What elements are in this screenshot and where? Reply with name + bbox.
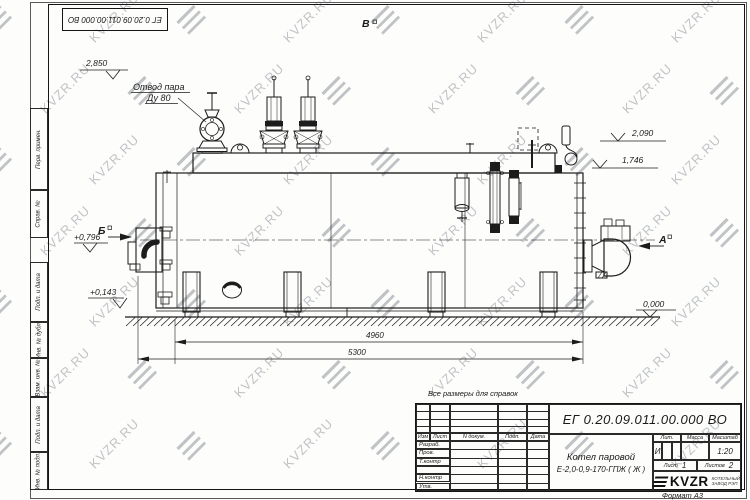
title-block: Изм Лист N докум. Подп. Дата Разраб. Про… bbox=[415, 403, 742, 492]
col-header-izm: Изм bbox=[416, 433, 430, 441]
doc-number: ЕГ 0.20.09.011.00.000 ВО bbox=[549, 404, 741, 434]
row-tkontr: Т.контр bbox=[416, 458, 450, 466]
mass-header: Масса bbox=[681, 434, 709, 442]
col-header-data: Дата bbox=[527, 433, 549, 441]
lit-cell-2 bbox=[662, 442, 671, 460]
kvzr-stripes-icon bbox=[652, 475, 669, 487]
side-cell-vzam-inv: Взам. инв. № bbox=[30, 358, 48, 397]
side-cell-podp-data-2: Подп. и дата bbox=[30, 397, 48, 452]
row-utv: Утв. bbox=[416, 483, 450, 492]
format-label: Формат А3 bbox=[662, 491, 703, 500]
lit-header: Лит. bbox=[653, 434, 681, 442]
company-logo-cell: KVZR КОТЕЛЬНЫЙ ЗАВОД РЭП bbox=[653, 471, 741, 491]
sheet-edge-top bbox=[30, 2, 747, 3]
side-cell-sprav: Справ. № bbox=[30, 190, 48, 238]
lit-value: И bbox=[653, 442, 662, 460]
product-name: Котел паровой Е-2,0-0,9-170-ГПЖ ( Ж ) bbox=[549, 434, 653, 491]
col-header-podp: Подп. bbox=[498, 433, 527, 441]
col-header-list: Лист bbox=[430, 433, 450, 441]
side-cell-podp-data-1: Подп. и дата bbox=[30, 262, 48, 322]
sheets-cell: Листов 2 bbox=[697, 460, 741, 471]
mass-value bbox=[681, 442, 709, 460]
sheet-edge-bottom bbox=[30, 498, 747, 499]
sheet-edge-right bbox=[746, 2, 747, 498]
drawing-sheet: { "watermark": { "text": "KVZR.RU" }, "s… bbox=[0, 0, 750, 500]
side-cell-perv-primen: Перв. примен. bbox=[30, 108, 48, 190]
reference-note: Все размеры для справок bbox=[428, 389, 518, 398]
company-subtitle: КОТЕЛЬНЫЙ ЗАВОД РЭП bbox=[712, 476, 740, 486]
col-header-ndoc: N докум. bbox=[450, 433, 498, 441]
scale-header: Масштаб bbox=[709, 434, 741, 442]
sheet-cell: Лист 1 bbox=[653, 460, 697, 471]
top-doc-number-box: ЕГ 0.20.09.011.00.000 ВО bbox=[62, 8, 168, 31]
lit-cell-3 bbox=[672, 442, 681, 460]
row-blank bbox=[416, 466, 450, 474]
row-prov: Пров. bbox=[416, 449, 450, 457]
side-cell-inv-podl: Инв. № подл. bbox=[30, 452, 48, 490]
row-nkontr: Н.контр bbox=[416, 474, 450, 482]
top-doc-number: ЕГ 0.20.09.011.00.000 ВО bbox=[68, 15, 162, 24]
row-razrab: Разраб. bbox=[416, 441, 450, 449]
side-cell-inv-dubl: Инв. № дубл. bbox=[30, 322, 48, 358]
company-name: KVZR bbox=[670, 474, 709, 489]
scale-value: 1:20 bbox=[709, 442, 741, 460]
